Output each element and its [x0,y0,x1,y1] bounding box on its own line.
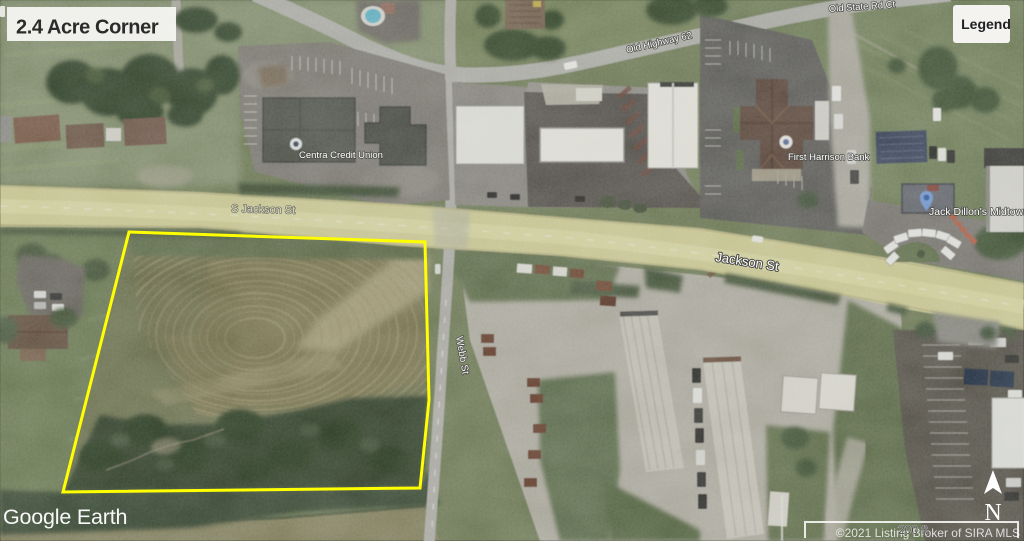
svg-text:Legend: Legend [961,16,1011,32]
svg-text:S Jackson St: S Jackson St [231,203,295,217]
svg-text:Centra Credit Union: Centra Credit Union [299,150,383,161]
svg-text:N: N [984,500,1001,526]
svg-text:First Harrison Bank: First Harrison Bank [788,152,870,163]
svg-text:200 ft: 200 ft [898,523,929,537]
svg-text:Jack Dillon's Midtown: Jack Dillon's Midtown [929,206,1024,218]
svg-text:2.4 Acre Corner: 2.4 Acre Corner [16,17,159,39]
svg-text:Google Earth: Google Earth [3,505,127,529]
